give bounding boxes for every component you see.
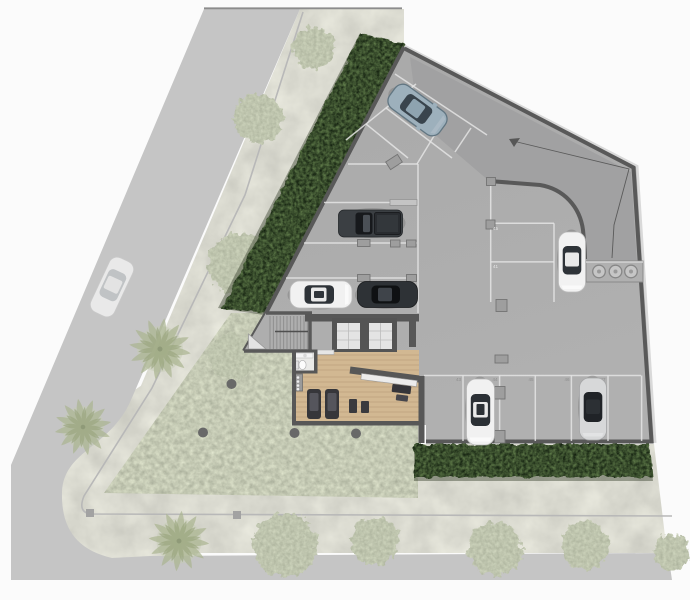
svg-text:45: 45	[493, 226, 499, 231]
svg-text:41: 41	[493, 264, 499, 269]
svg-text:45: 45	[528, 377, 534, 382]
svg-text:46: 46	[564, 377, 570, 382]
svg-text:43: 43	[456, 377, 462, 382]
svg-text:44: 44	[492, 377, 498, 382]
